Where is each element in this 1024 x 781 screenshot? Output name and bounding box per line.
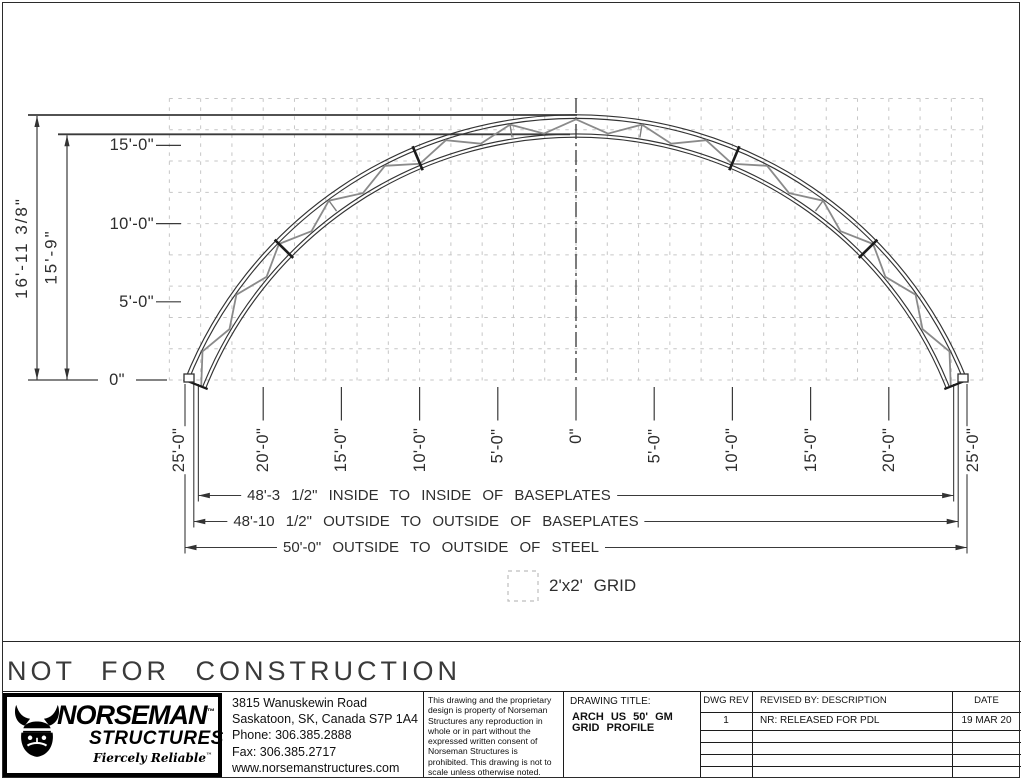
- rev-number: 1: [700, 715, 752, 726]
- title-block-top-border: [2, 691, 1021, 692]
- x-axis-label-10: 25'-0": [964, 426, 982, 474]
- span-dim-text-0: 48'-3 1/2" INSIDE TO INSIDE OF BASEPLATE…: [241, 487, 617, 504]
- rev-table-row-line: [700, 712, 1021, 713]
- x-axis-label-6: 5'-0": [645, 426, 663, 465]
- col-header-revised-by: REVISED BY: DESCRIPTION: [760, 695, 887, 706]
- y-axis-label-15ft: 15'-0": [74, 136, 156, 154]
- col-header-date: DATE: [952, 695, 1021, 706]
- inside-height-dim: 15'-9": [43, 227, 61, 286]
- rev-table-row-line: [700, 730, 1021, 731]
- brand-tagline: Fiercely Reliable™: [7, 751, 212, 765]
- x-axis-label-7: 10'-0": [724, 426, 742, 474]
- x-axis-label-5: 0": [567, 426, 585, 446]
- x-axis-label-8: 15'-0": [802, 426, 820, 474]
- grid-legend-label: 2'x2' GRID: [549, 576, 636, 596]
- drawing-sheet: 2'x2' GRID 15'-0"10'-0"5'-0"0"25'-0"20'-…: [0, 0, 1024, 781]
- overall-height-dim: 16'-11 3/8": [12, 195, 30, 301]
- x-axis-label-4: 5'-0": [489, 426, 507, 465]
- rev-description: NR: RELEASED FOR PDL: [760, 715, 879, 726]
- brand-subname: STRUCTURES: [89, 728, 224, 750]
- tagline-text: Fiercely Reliable: [93, 751, 206, 765]
- proprietary-disclaimer: This drawing and the proprietary design …: [428, 695, 558, 777]
- company-address: 3815 Wanuskewin Road Saskatoon, SK, Cana…: [232, 695, 418, 776]
- brand-text: NORSEMAN: [57, 700, 207, 730]
- rev-date: 19 MAR 20: [952, 715, 1021, 726]
- y-axis-label-0ft: 0": [98, 371, 136, 389]
- logo-cell: NORSEMAN™ STRUCTURES Fiercely Reliable™: [3, 693, 222, 777]
- address-line: Saskatoon, SK, Canada S7P 1A4: [232, 711, 418, 727]
- cell-divider: [423, 691, 424, 777]
- watermark-band-divider: [2, 641, 1021, 642]
- x-axis-label-9: 20'-0": [880, 426, 898, 474]
- drawing-title: ARCH US 50' GM GRID PROFILE: [572, 712, 704, 733]
- drawing-title-label: DRAWING TITLE:: [570, 696, 651, 707]
- brand-name: NORSEMAN™: [57, 700, 215, 731]
- span-dim-text-2: 50'-0" OUTSIDE TO OUTSIDE OF STEEL: [277, 539, 605, 556]
- x-axis-label-0: 25'-0": [170, 426, 188, 474]
- x-axis-label-1: 20'-0": [254, 426, 272, 474]
- y-axis-label-10ft: 10'-0": [74, 215, 156, 233]
- x-axis-label-2: 15'-0": [333, 426, 351, 474]
- rev-table-row-line: [700, 742, 1021, 743]
- y-axis-label-5ft: 5'-0": [74, 293, 156, 311]
- brand-tm: ™: [207, 707, 215, 716]
- cell-divider: [563, 691, 564, 777]
- rev-table-row-line: [700, 766, 1021, 767]
- cell-divider: [752, 691, 753, 777]
- address-line: www.norsemanstructures.com: [232, 760, 418, 776]
- title-block: NORSEMAN™ STRUCTURES Fiercely Reliable™ …: [2, 691, 1021, 778]
- rev-table-row-line: [700, 754, 1021, 755]
- x-axis-label-3: 10'-0": [411, 426, 429, 474]
- address-line: Fax: 306.385.2717: [232, 744, 418, 760]
- address-line: 3815 Wanuskewin Road: [232, 695, 418, 711]
- tagline-tm: ™: [206, 752, 212, 759]
- address-line: Phone: 306.385.2888: [232, 727, 418, 743]
- col-header-dwg-rev: DWG REV: [700, 695, 752, 706]
- not-for-construction-watermark: NOT FOR CONSTRUCTION: [7, 656, 461, 687]
- span-dim-text-1: 48'-10 1/2" OUTSIDE TO OUTSIDE OF BASEPL…: [227, 513, 644, 530]
